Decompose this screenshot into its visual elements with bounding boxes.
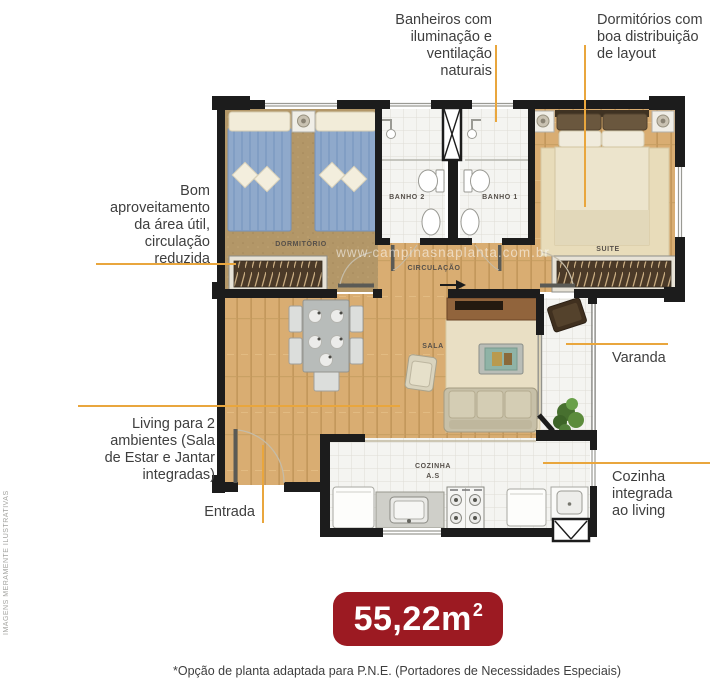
callout-living: Living para 2 ambientes (Sala de Estar e… [90, 416, 215, 484]
callout-varanda-label: Varanda [612, 350, 702, 367]
callout-living-line: integradas) [90, 467, 215, 484]
callout-cozinha-line: ao living [612, 503, 721, 520]
label-banho1: BANHO 1 [482, 194, 518, 201]
callout-line-living [78, 405, 400, 407]
callout-dormitorios: Dormitórios com boa distribuição de layo… [597, 12, 721, 63]
label-cozinha-as: A.S [426, 473, 439, 480]
callout-line-varanda [566, 343, 668, 345]
area-value: 55,22m [354, 600, 472, 639]
label-cozinha: COZINHA [415, 463, 451, 470]
callout-line-dormitorios [584, 45, 586, 207]
callout-banheiros-line: iluminação e [372, 29, 492, 46]
callout-aproveitamento-line: aproveitamento [88, 200, 210, 217]
callout-cozinha-line: integrada [612, 486, 721, 503]
callout-dormitorios-line: boa distribuição [597, 29, 721, 46]
callout-entrada: Entrada [148, 504, 255, 521]
callout-living-line: ambientes (Sala [90, 433, 215, 450]
callout-cozinha: Cozinha integrada ao living [612, 469, 721, 520]
callout-varanda: Varanda [612, 350, 702, 367]
callout-line-aproveitamento [96, 263, 236, 265]
callout-banheiros: Banheiros com iluminação e ventilação na… [372, 12, 492, 80]
callout-dormitorios-line: de layout [597, 46, 721, 63]
label-sala: SALA [422, 343, 443, 350]
callout-living-line: de Estar e Jantar [90, 450, 215, 467]
callout-banheiros-line: ventilação [372, 46, 492, 63]
callout-cozinha-line: Cozinha [612, 469, 721, 486]
callout-line-banheiros [495, 45, 497, 122]
footnote: *Opção de planta adaptada para P.N.E. (P… [73, 664, 721, 678]
callout-aproveitamento-line: da área útil, [88, 217, 210, 234]
label-circulacao: CIRCULAÇÃO [407, 263, 460, 272]
label-suite: SUITE [596, 246, 620, 253]
callout-aproveitamento-line: reduzida [88, 251, 210, 268]
side-disclaimer: IMAGENS MERAMENTE ILUSTRATIVAS [3, 510, 16, 635]
label-banho2: BANHO 2 [389, 194, 425, 201]
callout-aproveitamento-line: Bom [88, 183, 210, 200]
label-dormitorio: DORMITÓRIO [275, 239, 327, 248]
area-badge: 55,22m2 [333, 592, 503, 646]
callout-aproveitamento: Bom aproveitamento da área útil, circula… [88, 183, 210, 268]
callout-line-entrada [262, 445, 264, 523]
callout-banheiros-line: naturais [372, 63, 492, 80]
area-superscript: 2 [473, 600, 484, 621]
floorplan-page: www.campinasnaplanta.com.br DORMITÓRIO B… [0, 0, 721, 687]
callout-aproveitamento-line: circulação [88, 234, 210, 251]
watermark-text: www.campinasnaplanta.com.br [335, 245, 550, 260]
callout-banheiros-line: Banheiros com [372, 12, 492, 29]
callout-line-cozinha [543, 462, 710, 464]
callout-living-line: Living para 2 [90, 416, 215, 433]
callout-entrada-label: Entrada [148, 504, 255, 521]
callout-dormitorios-line: Dormitórios com [597, 12, 721, 29]
